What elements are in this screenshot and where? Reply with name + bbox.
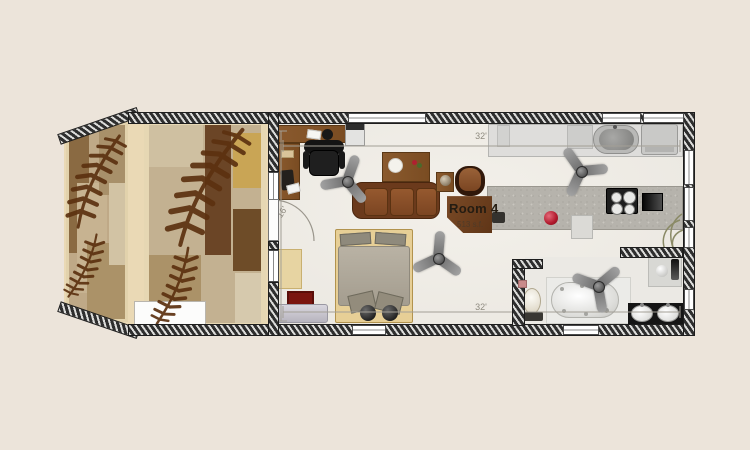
sofa-cushion [416, 188, 437, 216]
desk-lamp-icon [322, 129, 333, 140]
wall-bathroom-stub [512, 259, 543, 269]
ottoman [360, 305, 376, 321]
wall-left-mid [268, 241, 279, 250]
burner-icon [611, 203, 623, 215]
tub-jet [584, 312, 588, 316]
rug-patch [149, 125, 203, 167]
flower-icon [417, 163, 422, 168]
vanity-mirror [671, 259, 679, 280]
tub-drain [604, 308, 609, 313]
cabinet [497, 125, 510, 147]
window [602, 113, 641, 123]
rug-patch [235, 273, 261, 323]
window [268, 250, 279, 282]
oven [642, 193, 663, 211]
pillow [375, 232, 407, 246]
room-label: Room 4 [449, 201, 498, 216]
wall-left-upper [268, 112, 279, 172]
window [348, 113, 426, 123]
sofa-cushion [364, 188, 388, 216]
rug-patch [233, 133, 261, 188]
ottoman [382, 305, 398, 321]
window [684, 289, 694, 310]
window [684, 187, 694, 221]
window [352, 325, 386, 335]
pillow [340, 232, 372, 246]
window [563, 325, 599, 335]
fern-rug-right [144, 120, 266, 328]
window [268, 172, 279, 200]
cabinet [567, 125, 593, 149]
bowl [440, 175, 451, 186]
burner-icon [611, 192, 622, 203]
counter-table [571, 215, 593, 239]
window [643, 113, 684, 123]
floor-plan: Room 4 513 s.f. [0, 0, 750, 450]
wall-bathroom-left [512, 259, 525, 326]
dimension-label-top: 32' [466, 131, 496, 141]
window [684, 150, 694, 185]
tub-jet [600, 287, 604, 291]
faucet-icon [640, 303, 644, 307]
burner-icon [623, 191, 636, 204]
armchair-cushion [459, 168, 481, 191]
entry-door [268, 199, 279, 241]
deck-section [58, 108, 280, 340]
wall-left-lower [268, 282, 279, 336]
kettle [544, 211, 558, 225]
chair-armrest [303, 151, 309, 169]
sink-basin [599, 129, 634, 150]
stove [606, 188, 638, 214]
sink-basin [657, 305, 679, 322]
burner-icon [624, 204, 635, 215]
rug-patch [205, 125, 231, 255]
faucet-icon [666, 303, 670, 307]
tub-jet [560, 287, 564, 291]
sofa-cushion [390, 188, 414, 216]
chair-armrest [339, 151, 345, 169]
bench [275, 304, 328, 323]
vanity-bowl [656, 265, 668, 277]
room-area-label: 513 s.f. [457, 220, 483, 229]
office-chair [309, 150, 339, 176]
plate [388, 158, 403, 173]
papers [306, 129, 321, 140]
tub-jet [562, 309, 566, 313]
rug-patch [233, 209, 261, 271]
dimension-label-bottom: 32' [466, 302, 496, 312]
sink-basin [631, 305, 653, 322]
window [684, 227, 694, 248]
tub-jet [580, 284, 584, 288]
desk-tray [281, 150, 294, 158]
wall-bathroom-top [620, 247, 683, 258]
toilet-paper-holder [518, 280, 527, 288]
faucet-icon [613, 125, 617, 129]
toilet-bowl [523, 288, 541, 314]
printer-top [346, 124, 364, 130]
wall-bottom [128, 324, 695, 336]
fern-rug-left [66, 122, 128, 322]
rug-patch [109, 183, 128, 265]
refrigerator-handle [645, 147, 674, 152]
